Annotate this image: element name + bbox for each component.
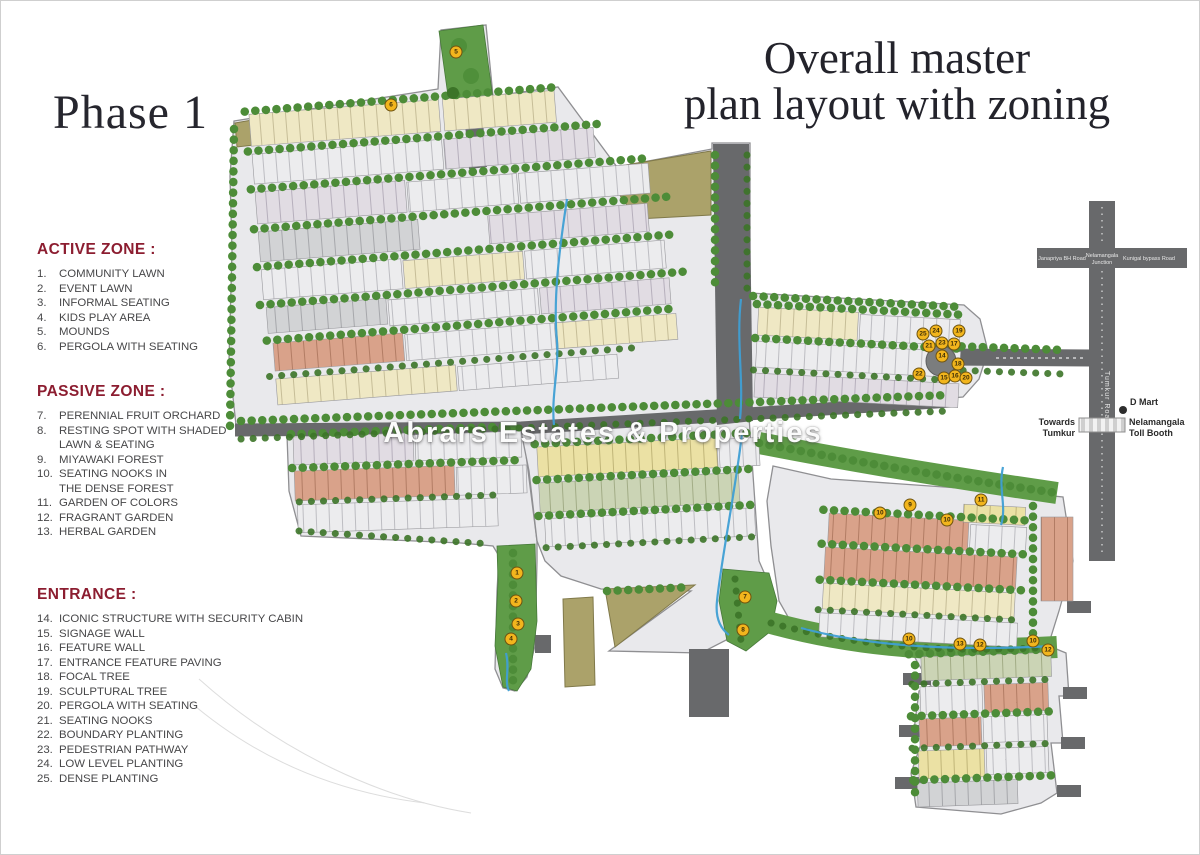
legend-item-number: 12. xyxy=(37,511,59,526)
legend-item-text: PERGOLA WITH SEATING xyxy=(59,340,198,355)
junction-right-label: Kunigal bypass Road xyxy=(1123,256,1175,262)
legend-passive-zone: PASSIVE ZONE : 7.PERENNIAL FRUIT ORCHARD… xyxy=(37,383,337,540)
legend-item-number: 3. xyxy=(37,296,59,311)
legend-item: 10.SEATING NOOKS IN THE DENSE FOREST xyxy=(37,467,337,496)
legend-item: 2.EVENT LAWN xyxy=(37,282,337,297)
legend-item-text: HERBAL GARDEN xyxy=(59,525,156,540)
legend-item-number: 22. xyxy=(37,728,59,743)
legend-item: 23.PEDESTRIAN PATHWAY xyxy=(37,743,337,758)
legend-item-text: FEATURE WALL xyxy=(59,641,145,656)
legend-item-text: RESTING SPOT WITH SHADED LAWN & SEATING xyxy=(59,424,227,453)
legend-item-text: ENTRANCE FEATURE PAVING xyxy=(59,656,222,671)
legend-item-number: 13. xyxy=(37,525,59,540)
legend-item: 9.MIYAWAKI FOREST xyxy=(37,453,337,468)
legend-item-text: PERGOLA WITH SEATING xyxy=(59,699,198,714)
legend-item: 25.DENSE PLANTING xyxy=(37,772,337,787)
legend-item-number: 9. xyxy=(37,453,59,468)
legend-item: 21.SEATING NOOKS xyxy=(37,714,337,729)
legend-item: 19.SCULPTURAL TREE xyxy=(37,685,337,700)
legend-item-text: ICONIC STRUCTURE WITH SECURITY CABIN xyxy=(59,612,303,627)
legend-item: 17.ENTRANCE FEATURE PAVING xyxy=(37,656,337,671)
legend-item-number: 23. xyxy=(37,743,59,758)
legend-item-number: 8. xyxy=(37,424,59,453)
watermark: Abrars Estates & Properties xyxy=(353,417,853,450)
legend-item: 11.GARDEN OF COLORS xyxy=(37,496,337,511)
legend-item-text: SEATING NOOKS xyxy=(59,714,152,729)
entrance-list: 14.ICONIC STRUCTURE WITH SECURITY CABIN1… xyxy=(37,612,337,786)
legend-item: 24.LOW LEVEL PLANTING xyxy=(37,757,337,772)
legend-item-number: 2. xyxy=(37,282,59,297)
dmart-dot xyxy=(1119,406,1127,414)
legend-item: 16.FEATURE WALL xyxy=(37,641,337,656)
legend-item: 7.PERENNIAL FRUIT ORCHARD xyxy=(37,409,337,424)
legend-item: 4.KIDS PLAY AREA xyxy=(37,311,337,326)
masterplan-page: Janapriya BH Road Nelamangala Junction K… xyxy=(0,0,1200,855)
legend-item-text: PEDESTRIAN PATHWAY xyxy=(59,743,188,758)
legend-item: 12.FRAGRANT GARDEN xyxy=(37,511,337,526)
active-zone-list: 1.COMMUNITY LAWN2.EVENT LAWN3.INFORMAL S… xyxy=(37,267,337,354)
plot-rows-right xyxy=(817,497,1028,647)
legend-item: 6.PERGOLA WITH SEATING xyxy=(37,340,337,355)
legend-item-text: COMMUNITY LAWN xyxy=(59,267,165,282)
passive-zone-list: 7.PERENNIAL FRUIT ORCHARD8.RESTING SPOT … xyxy=(37,409,337,540)
legend-entrance: ENTRANCE : 14.ICONIC STRUCTURE WITH SECU… xyxy=(37,586,337,786)
tollbooth-label-2: Toll Booth xyxy=(1129,428,1173,438)
legend-item-number: 4. xyxy=(37,311,59,326)
legend-item-number: 10. xyxy=(37,467,59,496)
legend-item: 3.INFORMAL SEATING xyxy=(37,296,337,311)
legend-item-number: 6. xyxy=(37,340,59,355)
legend-item-number: 25. xyxy=(37,772,59,787)
legend-item-text: INFORMAL SEATING xyxy=(59,296,170,311)
legend-item-text: SEATING NOOKS IN THE DENSE FOREST xyxy=(59,467,174,496)
legend-item-text: GARDEN OF COLORS xyxy=(59,496,178,511)
legend-item-number: 15. xyxy=(37,627,59,642)
legend-item-text: PERENNIAL FRUIT ORCHARD xyxy=(59,409,220,424)
legend-item-number: 1. xyxy=(37,267,59,282)
legend-item-number: 20. xyxy=(37,699,59,714)
junction-left-label: Janapriya BH Road xyxy=(1038,256,1086,262)
legend-item: 18.FOCAL TREE xyxy=(37,670,337,685)
legend-item-text: FRAGRANT GARDEN xyxy=(59,511,173,526)
junction-center-label-2: Junction xyxy=(1092,260,1113,266)
legend-item-number: 17. xyxy=(37,656,59,671)
legend-item: 5.MOUNDS xyxy=(37,325,337,340)
entrance-heading: ENTRANCE : xyxy=(37,586,337,604)
legend-item: 15.SIGNAGE WALL xyxy=(37,627,337,642)
legend-item-text: FOCAL TREE xyxy=(59,670,130,685)
tumkur-road-label: Tumkur Road xyxy=(1103,371,1110,424)
junction-center-label-1: Nelamangala xyxy=(1086,253,1119,259)
legend-item-number: 5. xyxy=(37,325,59,340)
legend-item-text: EVENT LAWN xyxy=(59,282,132,297)
legend-item-text: LOW LEVEL PLANTING xyxy=(59,757,183,772)
legend-item-number: 21. xyxy=(37,714,59,729)
legend-item-text: KIDS PLAY AREA xyxy=(59,311,150,326)
legend-item-number: 14. xyxy=(37,612,59,627)
legend-active-zone: ACTIVE ZONE : 1.COMMUNITY LAWN2.EVENT LA… xyxy=(37,241,337,354)
legend-item: 13.HERBAL GARDEN xyxy=(37,525,337,540)
legend-item-text: MIYAWAKI FOREST xyxy=(59,453,164,468)
legend-item-number: 16. xyxy=(37,641,59,656)
towards-tumkur-label-1: Towards xyxy=(1039,417,1075,427)
legend-item-text: BOUNDARY PLANTING xyxy=(59,728,183,743)
legend-item: 8.RESTING SPOT WITH SHADED LAWN & SEATIN… xyxy=(37,424,337,453)
legend-item: 1.COMMUNITY LAWN xyxy=(37,267,337,282)
legend-item-number: 18. xyxy=(37,670,59,685)
legend-item-number: 19. xyxy=(37,685,59,700)
legend-item-text: DENSE PLANTING xyxy=(59,772,158,787)
legend-item-number: 11. xyxy=(37,496,59,511)
legend-item-text: SIGNAGE WALL xyxy=(59,627,145,642)
legend-item: 22.BOUNDARY PLANTING xyxy=(37,728,337,743)
legend-item-number: 24. xyxy=(37,757,59,772)
passive-zone-heading: PASSIVE ZONE : xyxy=(37,383,337,401)
legend-item: 14.ICONIC STRUCTURE WITH SECURITY CABIN xyxy=(37,612,337,627)
toll-booth-band xyxy=(1079,418,1125,432)
legend-item-text: SCULPTURAL TREE xyxy=(59,685,167,700)
towards-tumkur-label-2: Tumkur xyxy=(1043,428,1076,438)
tollbooth-label-1: Nelamangala xyxy=(1129,417,1186,427)
entrance-plaza xyxy=(926,346,956,376)
legend-item-number: 7. xyxy=(37,409,59,424)
legend-item: 20.PERGOLA WITH SEATING xyxy=(37,699,337,714)
dmart-label: D Mart xyxy=(1130,397,1158,407)
active-zone-heading: ACTIVE ZONE : xyxy=(37,241,337,259)
legend-item-text: MOUNDS xyxy=(59,325,110,340)
